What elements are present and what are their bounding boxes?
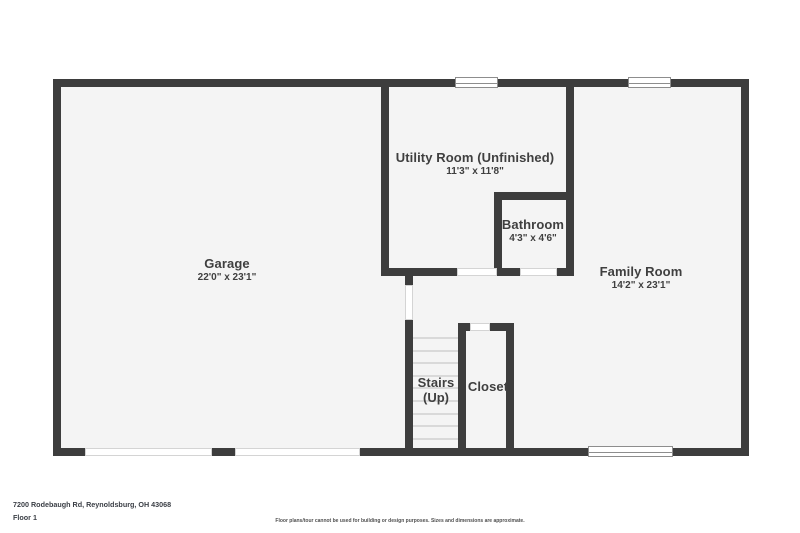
stair-tread-line <box>413 425 458 427</box>
disclaimer-text: Floor plans/tour cannot be used for buil… <box>275 518 524 524</box>
room-dimensions: (Up) <box>418 390 455 405</box>
window-bottom-family <box>588 446 673 457</box>
room-name: Closet <box>468 379 508 394</box>
room-name: Family Room <box>600 264 683 279</box>
wall-stairs-right <box>458 323 466 456</box>
door-opening-garage-hall <box>405 285 413 320</box>
stair-tread-line <box>413 362 458 364</box>
room-name: Stairs <box>418 375 455 390</box>
wall-exterior-right <box>741 79 749 456</box>
window-top-family <box>628 77 671 88</box>
window-pane-line <box>629 83 670 84</box>
room-dimensions: 14'2" x 23'1" <box>600 279 683 292</box>
room-label-garage: Garage 22'0" x 23'1" <box>198 256 257 284</box>
wall-stairs-left-stub <box>405 275 413 285</box>
window-top-utility <box>455 77 498 88</box>
room-dimensions: 22'0" x 23'1" <box>198 271 257 284</box>
stair-tread-line <box>413 350 458 352</box>
room-name: Bathroom <box>502 217 564 232</box>
room-label-family-room: Family Room 14'2" x 23'1" <box>600 264 683 292</box>
floor-plan-page: Garage 22'0" x 23'1" Utility Room (Unfin… <box>0 0 800 533</box>
wall-utility-family-divider <box>566 87 574 276</box>
room-name: Utility Room (Unfinished) <box>396 150 555 165</box>
room-label-bathroom: Bathroom 4'3" x 4'6" <box>502 217 564 245</box>
room-label-utility-room: Utility Room (Unfinished) 11'3" x 11'8" <box>396 150 555 178</box>
floor-number-label: Floor 1 <box>13 513 37 522</box>
address-text: 7200 Rodebaugh Rd, Reynoldsburg, OH 4306… <box>13 500 171 509</box>
room-name: Garage <box>198 256 257 271</box>
door-opening-bathroom <box>520 268 557 276</box>
wall-utility-south-a <box>381 268 457 276</box>
door-opening-utility-room <box>457 268 497 276</box>
wall-stairs-left <box>405 320 413 456</box>
room-label-closet: Closet <box>468 379 508 394</box>
wall-bathroom-left <box>494 192 502 276</box>
wall-garage-utility-divider <box>381 87 389 276</box>
window-pane-line <box>589 452 672 453</box>
room-dimensions: 4'3" x 4'6" <box>502 232 564 245</box>
stair-tread-line <box>413 438 458 440</box>
wall-closet-top-a <box>458 323 470 331</box>
door-opening-closet <box>470 323 490 331</box>
window-pane-line <box>456 83 497 84</box>
garage-door-opening-left <box>85 448 212 456</box>
stair-tread-line <box>413 337 458 339</box>
garage-door-opening-right <box>235 448 360 456</box>
room-dimensions: 11'3" x 11'8" <box>396 165 555 178</box>
stair-tread-line <box>413 413 458 415</box>
wall-exterior-left <box>53 79 61 456</box>
room-label-stairs: Stairs (Up) <box>418 375 455 405</box>
wall-bathroom-top <box>494 192 574 200</box>
